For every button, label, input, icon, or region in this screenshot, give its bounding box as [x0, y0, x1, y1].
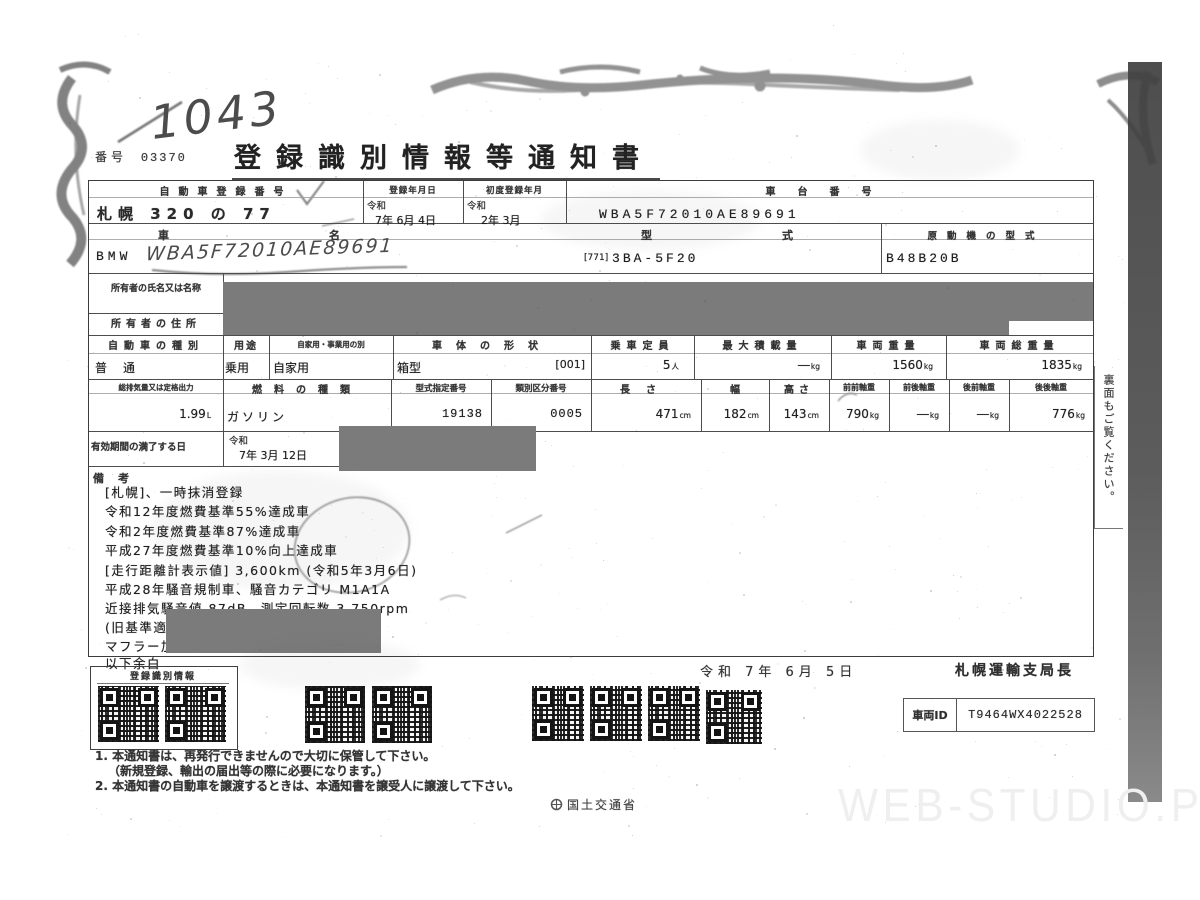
label-chassis-number: 車台番号 [566, 183, 1093, 198]
label-body-shape: 車体の形状 [393, 337, 591, 352]
model-prefix: [771] [584, 253, 608, 263]
label-height: 高さ [769, 381, 829, 396]
page-title: 登録識別情報等通知書 [232, 136, 660, 180]
capacity-unit: 人 [672, 362, 680, 371]
doc-number-value: 03370 [141, 151, 187, 165]
redaction-expiry [339, 426, 536, 471]
axle-fr-number: ― [917, 407, 929, 421]
side-note: 裏面もご覧ください。 [1100, 374, 1116, 524]
value-fuel-type: ガソリン [227, 408, 287, 425]
registration-form-table: 自動車登録番号 登録年月日 初度登録年月 車台番号 札幌 320 の 77 令和… [88, 180, 1094, 657]
axle-rf-unit: kg [990, 411, 999, 420]
value-axle-rear-rear: 776kg [1009, 407, 1085, 421]
value-axle-front-rear: ―kg [889, 407, 939, 421]
registration-id-box-label: 登録識別情報 [97, 669, 229, 684]
scan-edge-bar [1128, 62, 1162, 802]
registration-id-box: 登録識別情報 [90, 666, 238, 750]
label-gross-weight: 車両総重量 [946, 337, 1093, 352]
qr-code [98, 686, 159, 742]
label-model: 型式 [641, 227, 861, 241]
label-width: 幅 [701, 381, 769, 396]
vehicle-id-value: T9464WX4022528 [957, 699, 1094, 731]
value-capacity: 5人 [591, 358, 679, 372]
remarks-line: 平成28年騒音規制車、騒音カテゴリ M1A1A [105, 579, 391, 598]
displacement-number: 1.99 [179, 407, 206, 421]
top-flourish-band [432, 67, 972, 96]
value-height: 143cm [769, 407, 819, 421]
label-displacement: 総排気量又は定格出力 [91, 382, 221, 393]
value-chassis-number: WBA5F72010AE89691 [599, 207, 800, 222]
value-car-name: BMW [96, 249, 131, 264]
axle-rr-number: 776 [1052, 407, 1075, 421]
qr-code [305, 686, 365, 743]
value-displacement: 1.99L [91, 407, 211, 421]
remarks-line: 令和12年度燃費基準55%達成車 [105, 501, 310, 520]
label-registration-date: 登録年月日 [363, 184, 463, 196]
value-axle-rear-front: ―kg [949, 407, 999, 421]
redaction-owner-address [223, 321, 1009, 335]
gross-weight-unit: kg [1073, 362, 1082, 371]
date-value: 7年 3月 12日 [239, 449, 307, 462]
qr-code [590, 686, 642, 741]
label-axle-front-front: 前前軸重 [829, 382, 889, 393]
axle-ff-unit: kg [870, 411, 879, 420]
width-unit: cm [748, 411, 759, 420]
qr-code [706, 690, 762, 744]
max-load-unit: kg [811, 362, 820, 371]
qr-code [532, 686, 584, 741]
axle-rr-unit: kg [1076, 411, 1085, 420]
axle-rf-number: ― [977, 407, 989, 421]
issuing-authority: 札幌運輸支局長 [955, 660, 1074, 680]
label-registration-number: 自動車登録番号 [89, 183, 363, 198]
label-fuel-type: 燃料の種類 [223, 381, 391, 396]
mlit-logo-icon [550, 798, 563, 811]
remarks-line: [走行距離計表示値] 3,600km (令和5年3月6日) [105, 560, 418, 579]
length-unit: cm [680, 411, 691, 420]
label-vehicle-kind: 自動車の種別 [89, 337, 223, 352]
value-class-number: 0005 [491, 407, 583, 421]
ministry-name: 国土交通省 [567, 796, 637, 813]
redaction-remarks [166, 609, 381, 653]
remarks-line: 平成27年度燃費基準10%向上達成車 [105, 540, 338, 559]
value-gross-weight: 1835kg [946, 358, 1082, 372]
vehicle-id-box: 車両ID T9464WX4022528 [903, 698, 1095, 732]
axle-fr-unit: kg [930, 411, 939, 420]
capacity-number: 5 [663, 358, 671, 372]
value-length: 471cm [591, 407, 691, 421]
ministry-signature: 国土交通省 [550, 796, 637, 813]
height-number: 143 [784, 407, 807, 421]
model-value: 3BA-5F20 [612, 251, 698, 266]
era-label: 令和 [367, 198, 436, 212]
label-axle-front-rear: 前後軸重 [889, 382, 949, 393]
label-engine-model: 原動機の型式 [886, 228, 1086, 242]
label-type-cert-number: 型式指定番号 [391, 382, 491, 394]
weight-unit: kg [924, 362, 933, 371]
date-value: 7年 6月 4日 [375, 214, 436, 227]
label-expiry-date: 有効期間の満了する日 [91, 439, 221, 453]
height-unit: cm [808, 411, 819, 420]
weight-number: 1560 [892, 358, 923, 372]
scanned-document: 1043 番号 03370 登録識別情報等通知書 [0, 0, 1200, 900]
label-max-load: 最大積載量 [694, 337, 831, 352]
value-registration-number: 札幌 320 の 77 [97, 203, 276, 224]
value-model: [771] 3BA-5F20 [584, 251, 698, 266]
doc-number: 番号 03370 [95, 148, 187, 165]
axle-ff-number: 790 [846, 407, 869, 421]
gross-weight-number: 1835 [1041, 358, 1072, 372]
value-private-business: 自家用 [273, 359, 309, 376]
era-label: 令和 [467, 198, 521, 212]
value-vehicle-weight: 1560kg [831, 358, 933, 372]
value-expiry-date: 令和 7年 3月 12日 [229, 433, 307, 463]
value-use: 乗用 [225, 359, 249, 376]
label-axle-rear-rear: 後後軸重 [1009, 382, 1093, 393]
value-first-registration: 令和 2年 3月 [467, 198, 521, 228]
remarks-line: [札幌]、一時抹消登録 [105, 482, 244, 501]
date-value: 2年 3月 [481, 214, 521, 227]
value-axle-front-front: 790kg [829, 407, 879, 421]
era-label: 令和 [229, 433, 307, 447]
remarks-line: 令和2年度燃費基準87%達成車 [105, 521, 301, 540]
displacement-unit: L [207, 411, 211, 420]
label-use: 用途 [223, 337, 269, 352]
value-max-load: ―kg [694, 358, 820, 372]
label-first-registration: 初度登録年月 [463, 184, 566, 196]
qr-code [165, 686, 226, 742]
value-width: 182cm [701, 407, 759, 421]
note-line: 2. 本通知書の自動車を譲渡するときは、本通知書を譲受人に譲渡して下さい。 [95, 777, 520, 794]
watermark: WEB-STUDIO.PRO [838, 778, 1200, 832]
label-private-business: 自家用・事業用の別 [269, 339, 393, 350]
width-number: 182 [724, 407, 747, 421]
value-registration-date: 令和 7年 6月 4日 [367, 198, 436, 228]
label-capacity: 乗車定員 [591, 337, 694, 352]
qr-code [648, 686, 700, 741]
vehicle-id-label: 車両ID [904, 699, 957, 731]
redaction-owner-name [223, 282, 1093, 321]
value-body-code: [001] [519, 358, 585, 371]
value-vehicle-kind: 普通 [95, 359, 151, 376]
length-number: 471 [656, 407, 679, 421]
label-class-number: 類別区分番号 [491, 382, 591, 394]
label-vehicle-weight: 車両重量 [831, 337, 946, 352]
doc-number-label: 番号 [95, 150, 127, 164]
qr-code [372, 686, 432, 743]
value-type-cert-number: 19138 [391, 407, 483, 421]
scan-smudge [860, 120, 1020, 180]
issue-date: 令和 7年 6月 5日 [700, 661, 857, 680]
label-owner-name: 所有者の氏名又は名称 [91, 281, 221, 294]
label-length: 長さ [591, 381, 701, 396]
label-axle-rear-front: 後前軸重 [949, 382, 1009, 393]
max-load-number: ― [798, 358, 810, 372]
value-body-shape: 箱型 [397, 359, 421, 376]
value-engine-model: B48B20B [886, 251, 962, 266]
label-owner-address: 所有者の住所 [91, 315, 221, 330]
